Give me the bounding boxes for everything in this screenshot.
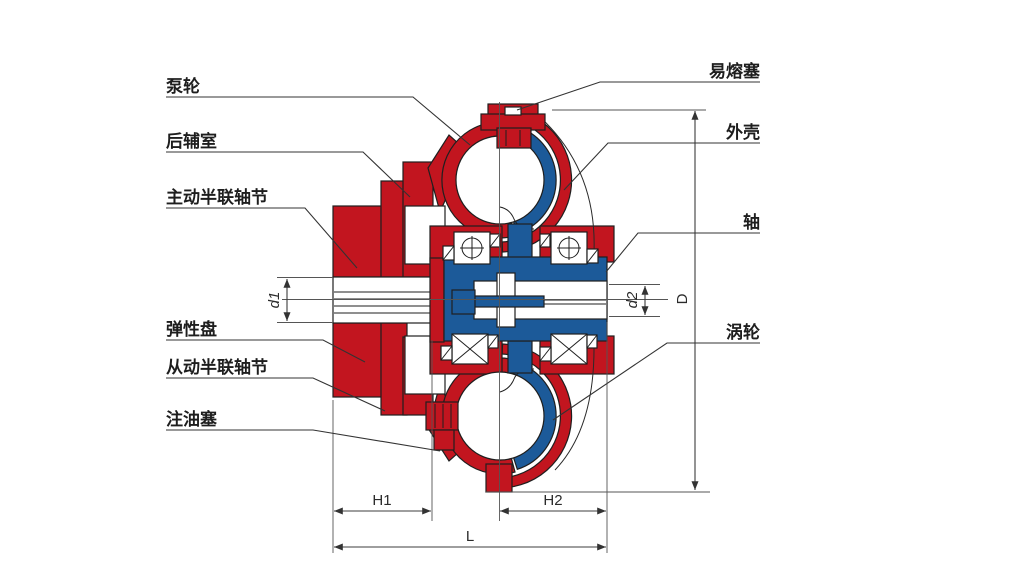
label-pump-wheel: 泵轮 <box>166 76 200 96</box>
shell-foot <box>486 464 512 492</box>
dim-label-d2: d2 <box>624 291 641 308</box>
coupling-bore <box>333 277 432 323</box>
dimension-H2: H2 <box>500 492 606 511</box>
label-shaft: 轴 <box>743 212 760 232</box>
label-rear-chamber: 后辅室 <box>166 131 217 151</box>
label-fusible-plug: 易熔塞 <box>709 61 761 81</box>
dim-label-L: L <box>466 528 474 545</box>
dimension-H1: H1 <box>334 492 431 511</box>
label-turbine: 涡轮 <box>726 322 760 342</box>
dimension-L: L <box>334 528 606 547</box>
label-driving-half-coupling: 主动半联轴节 <box>166 187 268 207</box>
leader-oil-fill-plug <box>166 430 440 451</box>
dim-label-d1: d1 <box>266 292 283 309</box>
label-driven-half-coupling: 从动半联轴节 <box>166 357 268 377</box>
label-oil-fill-plug: 注油塞 <box>166 409 218 429</box>
fluid-coupling-section-diagram: d1 d2 D H1 H2 L 泵轮 后辅室 主动半联轴节 弹性盘 从动半联轴节… <box>0 0 1013 580</box>
fluid-coupling-cross-section-page: d1 d2 D H1 H2 L 泵轮 后辅室 主动半联轴节 弹性盘 从动半联轴节… <box>0 0 1013 580</box>
dim-label-H2: H2 <box>543 492 562 509</box>
dimension-d1: d1 <box>266 279 287 321</box>
oil-fill-plug-shape <box>426 402 458 450</box>
leader-housing <box>564 143 760 190</box>
dim-label-H1: H1 <box>372 492 391 509</box>
hub-bolt-rod <box>474 296 544 307</box>
hub-bolt-head <box>452 290 475 314</box>
label-housing: 外壳 <box>726 122 760 142</box>
leader-driving-half-coupling <box>166 208 357 268</box>
dimension-D: D <box>674 111 695 490</box>
label-elastic-disc: 弹性盘 <box>166 319 217 339</box>
dim-label-D: D <box>674 293 691 304</box>
dimension-d2: d2 <box>624 286 645 315</box>
leader-fusible-plug <box>517 82 760 110</box>
leader-shaft <box>606 233 760 272</box>
